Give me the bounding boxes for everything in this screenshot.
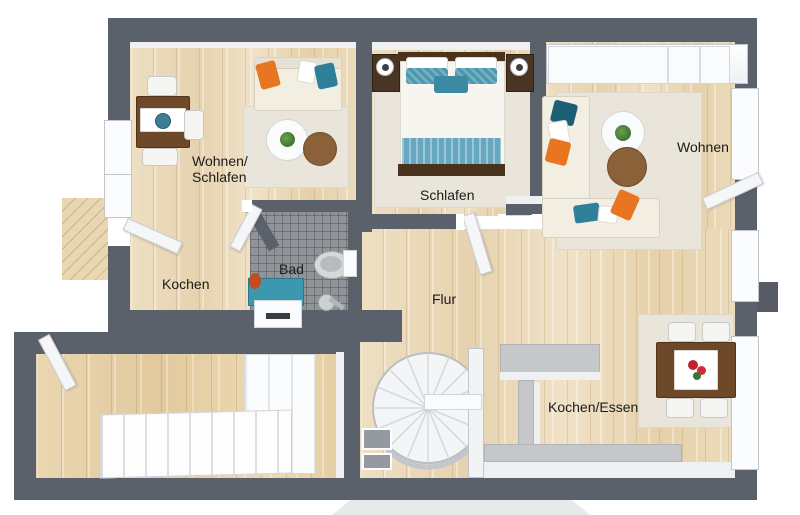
window-right-2 — [731, 230, 759, 302]
essen-chair-top-left — [668, 322, 696, 342]
lamp-right-dot — [516, 64, 523, 71]
toilet-tank — [343, 250, 357, 277]
wall-bottom — [14, 478, 757, 500]
room-label-schlafen: Schlafen — [420, 187, 474, 203]
essen-chair-bottom-left — [666, 398, 694, 418]
lamp-left-dot — [382, 64, 389, 71]
essen-chair-top-right — [702, 322, 730, 342]
kitchen-counter-top-face — [500, 372, 600, 380]
room-label-kochen-essen: Kochen/Essen — [548, 399, 638, 415]
essen-table-runner — [674, 350, 718, 390]
wall-top — [112, 18, 757, 42]
door-post-schlafen-a — [456, 214, 464, 230]
bad-sink-drawer — [266, 313, 290, 319]
wall-face-ws-top — [130, 42, 356, 48]
window-left-2 — [104, 174, 132, 218]
wall-face-flur-stub — [506, 196, 546, 204]
wall-schlafen-bottom — [360, 214, 464, 229]
wall-bad-top — [250, 200, 350, 212]
window-left-1 — [104, 120, 132, 176]
room-label-wohnen-schlafen: Wohnen/ Schlafen — [192, 153, 248, 185]
chimney-block — [757, 282, 778, 312]
window-right-1 — [731, 88, 759, 180]
room-label-flur: Flur — [432, 291, 456, 307]
straight-staircase — [100, 409, 292, 478]
wall-face-schlafen-top — [372, 42, 530, 50]
bed-runner — [402, 138, 501, 164]
wall-stair-top — [344, 328, 402, 342]
kitchen-counter-left-face — [534, 382, 540, 448]
stair-landing — [424, 394, 482, 410]
essen-flowers-leaves — [693, 372, 701, 380]
room-label-wohnen-schlafen-line1: Wohnen/ — [192, 153, 248, 169]
door-post-schlafen-b — [498, 214, 506, 229]
toilet-seat — [320, 256, 342, 272]
kitchen-counter-bottom — [484, 444, 682, 462]
wohnen-wardrobe — [548, 46, 730, 84]
radiator-lower — [362, 453, 392, 470]
floor-plan: Wohnen/ Schlafen Schlafen Wohnen Kochen … — [0, 0, 800, 515]
ws-chair-top — [147, 76, 177, 96]
ws-side-table — [303, 132, 337, 166]
bed-accent-cushion — [434, 76, 468, 93]
bad-vanity-plant — [249, 273, 261, 289]
wall-stair-left — [344, 336, 360, 478]
wall-face-stair-west — [336, 352, 344, 478]
room-label-bad: Bad — [279, 261, 304, 277]
wall-face-essen-bottom — [484, 462, 735, 478]
ws-chair-right — [184, 110, 204, 140]
kitchen-counter-top — [500, 344, 600, 374]
radiator-upper — [362, 428, 392, 450]
double-bed — [398, 52, 505, 176]
door-post-bad — [242, 200, 252, 212]
room-label-wohnen: Wohnen — [677, 139, 729, 155]
wohnen-side-table — [607, 147, 647, 187]
ws-plant — [280, 132, 295, 147]
ws-table-bowl — [155, 113, 171, 129]
essen-chair-bottom-right — [700, 398, 728, 418]
room-label-kochen: Kochen — [162, 276, 209, 292]
wohnen-plant — [615, 125, 631, 141]
kitchen-counter-left — [518, 380, 534, 448]
stair-inner-wall — [468, 348, 484, 478]
ws-chair-bottom — [142, 148, 178, 166]
bed-footboard — [398, 164, 505, 176]
room-label-wohnen-schlafen-line2: Schlafen — [192, 169, 248, 185]
